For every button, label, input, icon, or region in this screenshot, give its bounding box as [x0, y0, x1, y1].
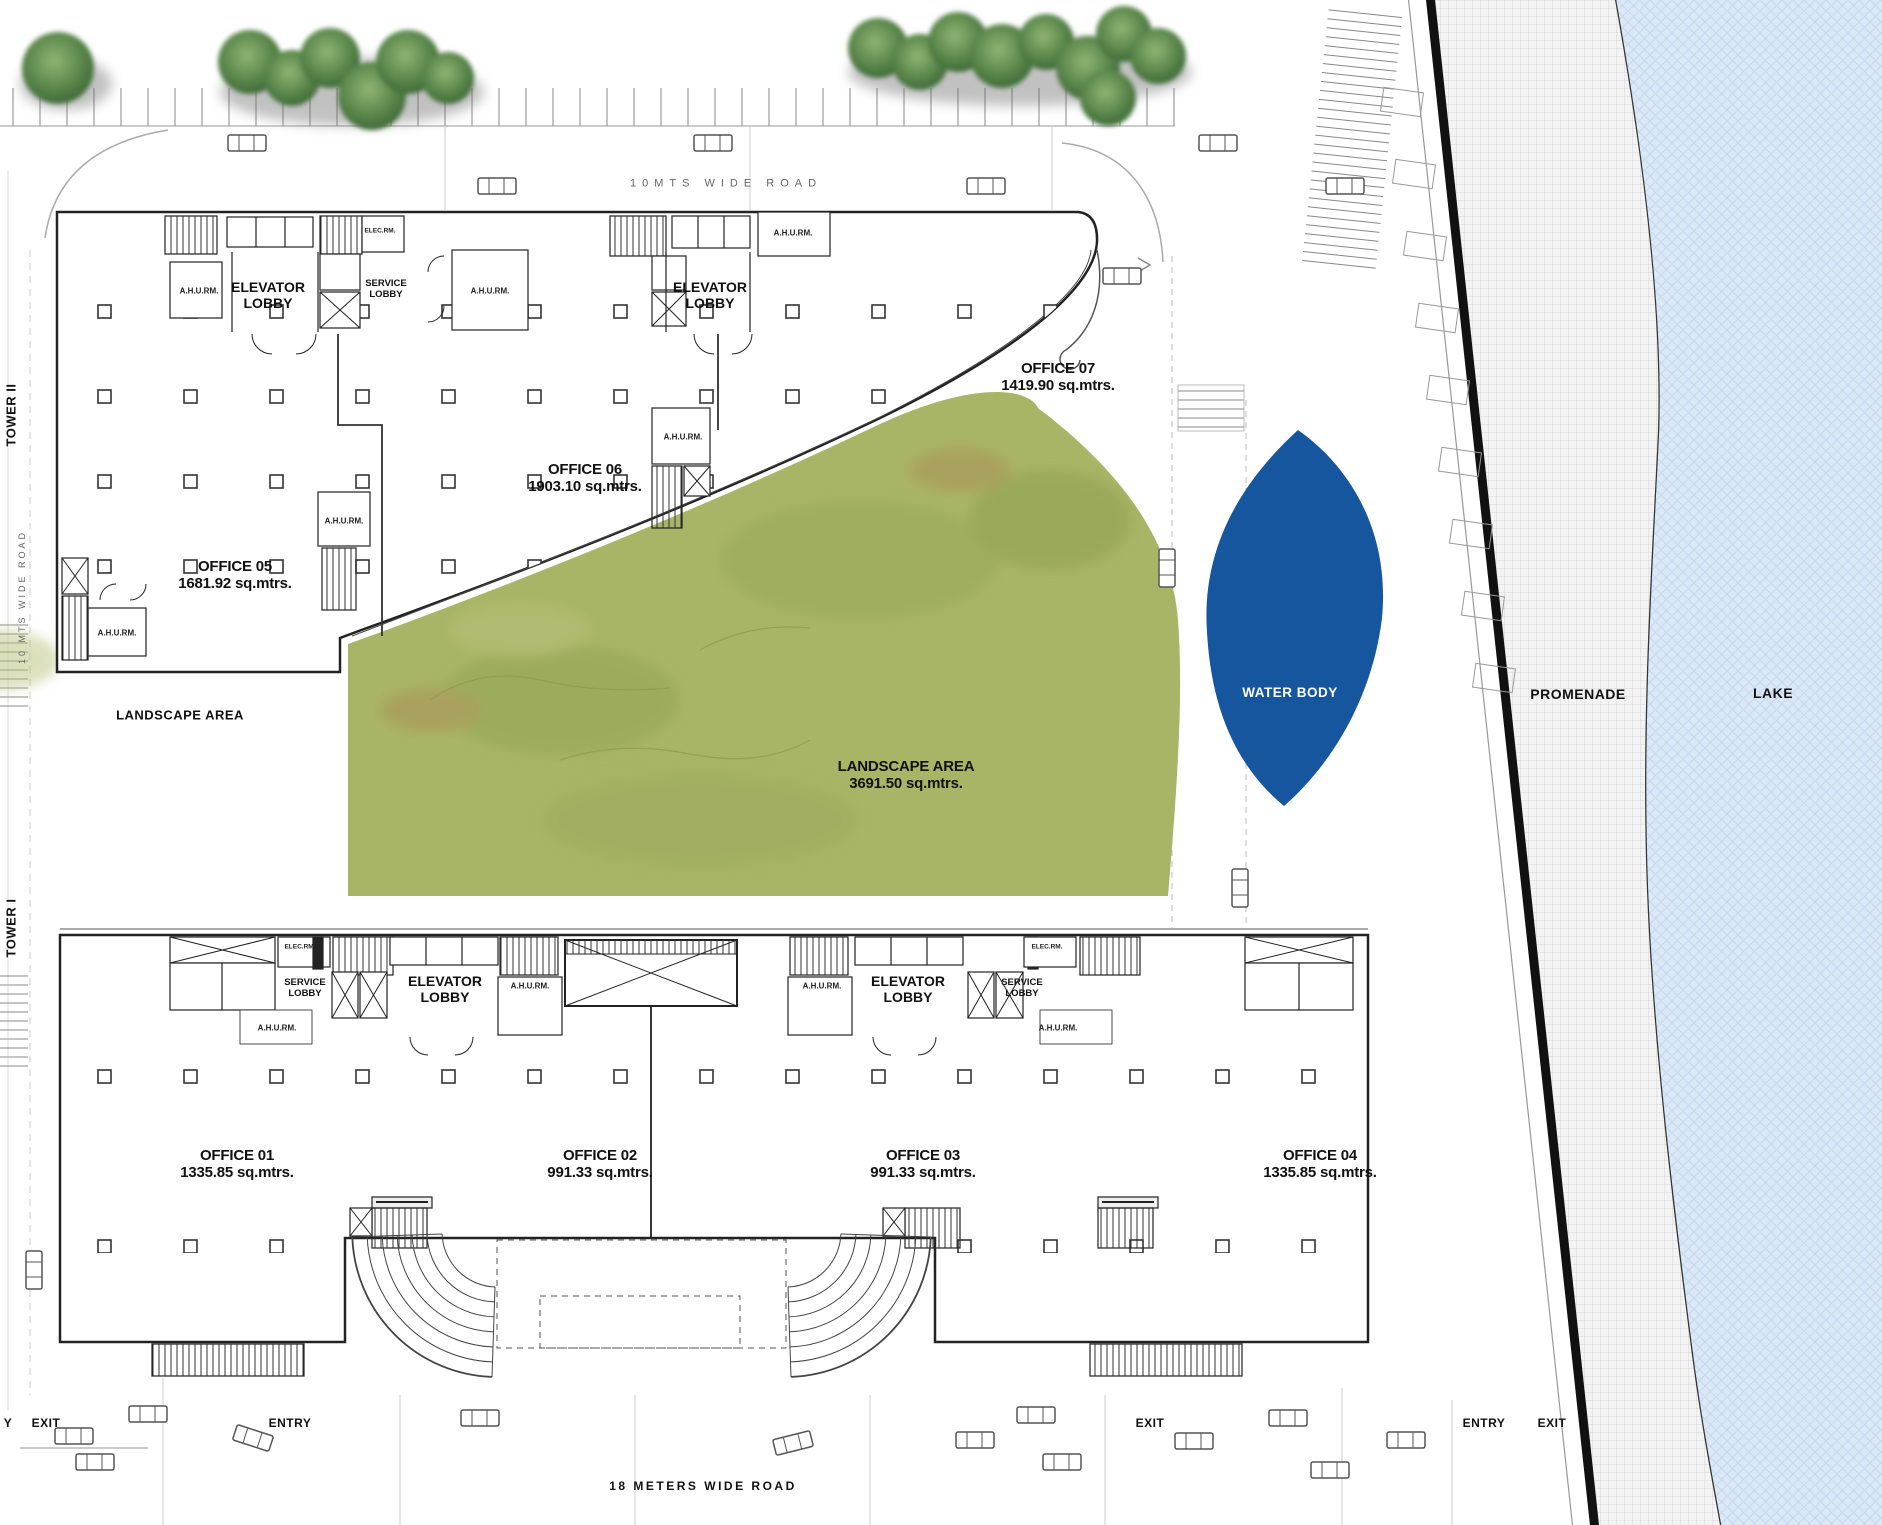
label-office-05: OFFICE 05 1681.92 sq.mtrs.: [178, 558, 292, 593]
label-ahu-9: A.H.U.RM.: [803, 981, 842, 990]
label-landscape-green: LANDSCAPE AREA 3691.50 sq.mtrs.: [838, 758, 975, 793]
label-elec-rm-1: ELEC.RM.: [364, 227, 395, 234]
tower-1-columns-row1: [85, 1040, 1347, 1088]
entry-plaza: [497, 1240, 786, 1348]
tower-1-columns-row2: [85, 1205, 1347, 1253]
label-ahu-4: A.H.U.RM.: [664, 432, 703, 441]
colonnade-right: [1090, 1344, 1242, 1376]
label-service-lobby-1: SERVICE LOBBY: [361, 279, 411, 301]
label-office-07: OFFICE 07 1419.90 sq.mtrs.: [1001, 360, 1115, 395]
label-ahu-5: A.H.U.RM.: [325, 516, 364, 525]
landscape-area-value: 3691.50 sq.mtrs.: [838, 775, 975, 792]
entry-fan-left: [352, 1234, 495, 1377]
parking-stalls-right: [1178, 385, 1244, 431]
label-water-body: WATER BODY: [1242, 685, 1338, 701]
office-name: OFFICE 06: [528, 461, 642, 478]
landscape-name: LANDSCAPE AREA: [838, 758, 975, 775]
office-name: OFFICE 07: [1001, 360, 1115, 377]
office-area: 991.33 sq.mtrs.: [870, 1164, 975, 1181]
water-body-shape: [1206, 430, 1383, 806]
label-elec-rm-2: ELEC.RM.: [284, 943, 315, 950]
label-entry-2: ENTRY: [1463, 1417, 1506, 1431]
bottom-road: [20, 1378, 1452, 1525]
left-road: [0, 170, 30, 1410]
label-tower-1: TOWER I: [5, 899, 20, 958]
label-ahu-6: A.H.U.RM.: [98, 628, 137, 637]
parking-ticks-left2: [0, 975, 28, 1067]
label-elevator-lobby-2: ELEVATOR LOBBY: [663, 279, 758, 311]
label-ahu-1: A.H.U.RM.: [180, 286, 219, 295]
office-area: 991.33 sq.mtrs.: [547, 1164, 652, 1181]
label-ahu-10: A.H.U.RM.: [1039, 1023, 1078, 1032]
office-name: OFFICE 04: [1263, 1147, 1377, 1164]
office-area: 1335.85 sq.mtrs.: [180, 1164, 294, 1181]
label-elevator-lobby-3: ELEVATOR LOBBY: [398, 973, 493, 1005]
label-entry-partial: Y: [4, 1417, 13, 1431]
office-area: 1681.92 sq.mtrs.: [178, 575, 292, 592]
office-name: OFFICE 02: [547, 1147, 652, 1164]
label-ahu-2: A.H.U.RM.: [471, 286, 510, 295]
label-road-left: 10 MTS WIDE ROAD: [17, 530, 27, 664]
label-exit-2: EXIT: [1136, 1417, 1165, 1431]
label-lake: LAKE: [1753, 685, 1793, 701]
office-area: 1903.10 sq.mtrs.: [528, 478, 642, 495]
label-exit-1: EXIT: [32, 1417, 61, 1431]
office-area: 1419.90 sq.mtrs.: [1001, 377, 1115, 394]
label-road-bottom: 18 METERS WIDE ROAD: [609, 1480, 797, 1494]
label-landscape-left: LANDSCAPE AREA: [116, 709, 244, 724]
label-ahu-3: A.H.U.RM.: [774, 228, 813, 237]
promenade-steps: [1301, 5, 1402, 276]
label-road-top: 10MTS WIDE ROAD: [630, 178, 822, 191]
label-exit-3: EXIT: [1538, 1417, 1567, 1431]
office-name: OFFICE 03: [870, 1147, 975, 1164]
label-ahu-7: A.H.U.RM.: [511, 981, 550, 990]
label-office-02: OFFICE 02 991.33 sq.mtrs.: [547, 1147, 652, 1182]
label-tower-2: TOWER II: [5, 384, 20, 447]
label-elec-rm-3: ELEC.RM.: [1031, 943, 1062, 950]
office-area: 1335.85 sq.mtrs.: [1263, 1164, 1377, 1181]
label-entry-1: ENTRY: [269, 1417, 312, 1431]
label-service-lobby-2: SERVICE LOBBY: [280, 978, 330, 1000]
label-office-03: OFFICE 03 991.33 sq.mtrs.: [870, 1147, 975, 1182]
entry-fan-right: [788, 1234, 931, 1377]
label-service-lobby-3: SERVICE LOBBY: [997, 978, 1047, 1000]
label-elevator-lobby-4: ELEVATOR LOBBY: [861, 973, 956, 1005]
label-office-04: OFFICE 04 1335.85 sq.mtrs.: [1263, 1147, 1377, 1182]
label-office-06: OFFICE 06 1903.10 sq.mtrs.: [528, 461, 642, 496]
office-name: OFFICE 01: [180, 1147, 294, 1164]
colonnade-left: [152, 1344, 304, 1376]
label-elevator-lobby-1: ELEVATOR LOBBY: [221, 279, 316, 311]
label-ahu-8: A.H.U.RM.: [258, 1023, 297, 1032]
site-plan: 10MTS WIDE ROAD TOWER II 10 MTS WIDE ROA…: [0, 0, 1882, 1525]
office-name: OFFICE 05: [178, 558, 292, 575]
label-office-01: OFFICE 01 1335.85 sq.mtrs.: [180, 1147, 294, 1182]
label-promenade: PROMENADE: [1530, 686, 1626, 702]
